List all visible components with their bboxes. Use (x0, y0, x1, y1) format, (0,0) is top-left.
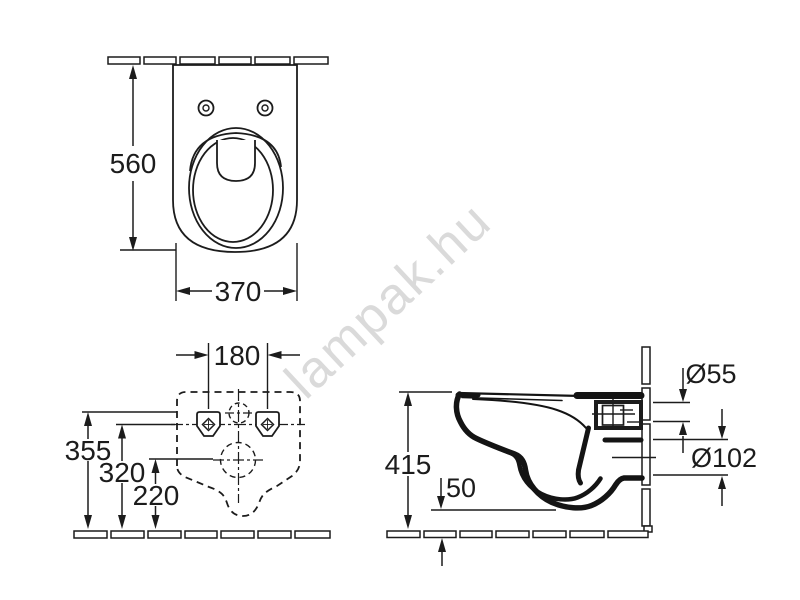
arrowhead-left (268, 351, 282, 359)
technical-drawing: lampak.hu 560 (0, 0, 800, 600)
drawing-canvas: lampak.hu 560 (0, 0, 800, 600)
wall-segment (180, 57, 215, 64)
wall-hatch-right (642, 347, 652, 532)
wall-segment (294, 57, 328, 64)
wall-segment (642, 347, 650, 384)
floor-segment (496, 531, 529, 538)
wall-segment (255, 57, 290, 64)
wall-segment (144, 57, 176, 64)
wall-segment (219, 57, 251, 64)
arrowhead-up (129, 65, 137, 79)
floor-segment (258, 531, 291, 538)
wall-segment (642, 489, 650, 526)
arrowhead-left (176, 287, 190, 295)
top-view: 560 370 (108, 57, 328, 307)
bowl-top-surface (473, 399, 586, 428)
dim-o55-label: Ø55 (685, 359, 736, 389)
watermark-text: lampak.hu (274, 191, 502, 409)
dim-outlet-diameter: Ø102 (691, 409, 757, 506)
dim-180-label: 180 (214, 340, 261, 371)
flush-channel (217, 140, 255, 181)
dim-560-label: 560 (110, 148, 157, 179)
floor-hatch-right (387, 531, 648, 538)
floor-segment (460, 531, 492, 538)
floor-segment (74, 531, 107, 538)
dim-220-label: 220 (133, 480, 180, 511)
floor-segment (387, 531, 420, 538)
toilet-side-profile (456, 393, 656, 508)
arrowhead-down (129, 237, 137, 251)
arrowhead-right (195, 351, 209, 359)
jet-channel (578, 428, 588, 483)
floor-pointer-arrow (438, 538, 446, 566)
inner-bowl (474, 437, 601, 500)
floor-segment (111, 531, 144, 538)
dim-370-label: 370 (215, 276, 262, 307)
dim-415: 415 (385, 392, 452, 529)
wall-segment (108, 57, 140, 64)
arrowhead-right (283, 287, 297, 295)
dim-560: 560 (110, 65, 176, 251)
dim-415-label: 415 (385, 449, 432, 480)
wall-hatch-top (108, 57, 328, 64)
floor-segment (533, 531, 566, 538)
floor-segment (570, 531, 604, 538)
dim-o102-label: Ø102 (691, 443, 757, 473)
side-view: Ø55 Ø102 415 50 (385, 347, 757, 566)
floor-segment (608, 531, 648, 538)
floor-segment (148, 531, 181, 538)
floor-segment (221, 531, 254, 538)
floor-segment (295, 531, 330, 538)
floor-segment (185, 531, 217, 538)
floor-hatch-left (74, 531, 330, 538)
dim-50-label: 50 (446, 473, 476, 503)
floor-segment (424, 531, 456, 538)
